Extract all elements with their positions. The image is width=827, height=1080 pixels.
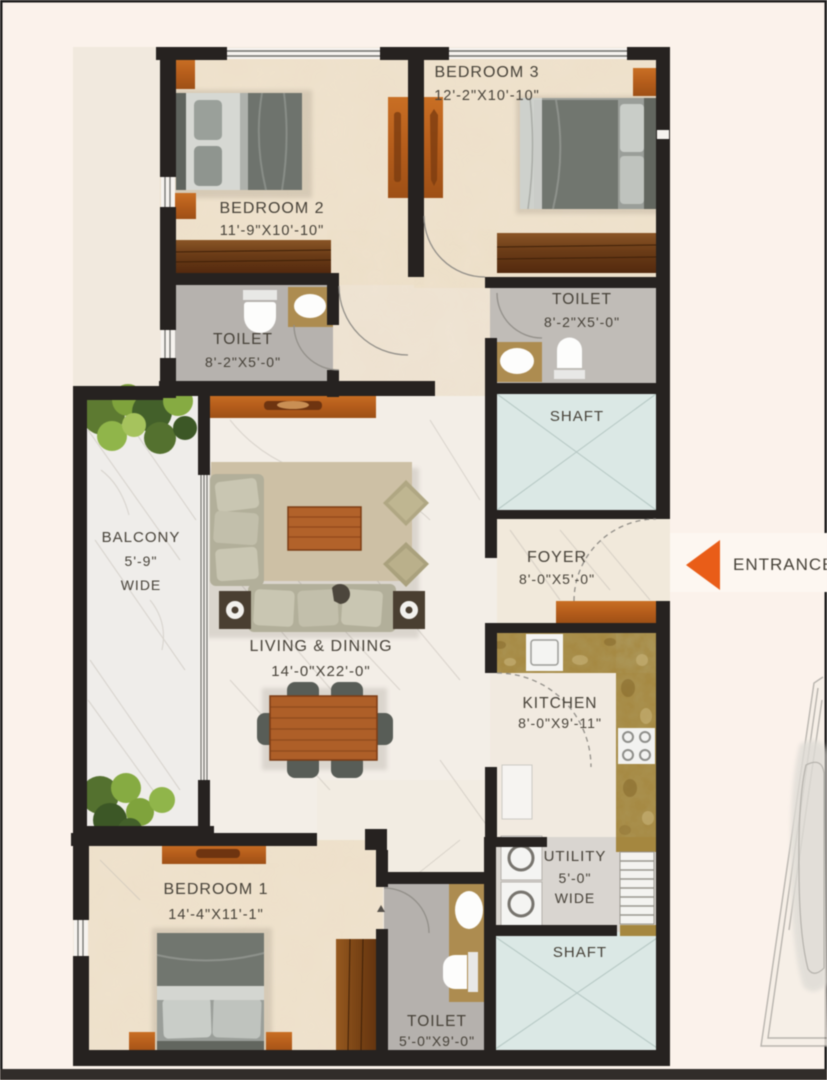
svg-text:BEDROOM 3: BEDROOM 3 xyxy=(434,64,539,81)
svg-text:LIVING & DINING: LIVING & DINING xyxy=(249,638,392,655)
svg-text:5'-9": 5'-9" xyxy=(125,553,158,569)
svg-text:FOYER: FOYER xyxy=(527,549,587,566)
svg-text:TOILET: TOILET xyxy=(552,291,612,308)
svg-text:BEDROOM 1: BEDROOM 1 xyxy=(163,881,268,898)
svg-text:BEDROOM 2: BEDROOM 2 xyxy=(219,200,324,217)
svg-text:BALCONY: BALCONY xyxy=(102,529,181,546)
svg-text:KITCHEN: KITCHEN xyxy=(522,695,597,712)
svg-text:5'-0": 5'-0" xyxy=(559,870,592,886)
svg-text:5'-0"X9'-0": 5'-0"X9'-0" xyxy=(399,1033,475,1049)
svg-text:8'-2"X5'-0": 8'-2"X5'-0" xyxy=(544,314,620,330)
svg-text:8'-2"X5'-0": 8'-2"X5'-0" xyxy=(205,354,281,370)
svg-text:TOILET: TOILET xyxy=(213,331,273,348)
svg-text:SHAFT: SHAFT xyxy=(553,944,607,961)
svg-text:WIDE: WIDE xyxy=(121,577,162,593)
svg-text:11'-9"X10'-10": 11'-9"X10'-10" xyxy=(220,223,325,239)
svg-text:WIDE: WIDE xyxy=(555,890,596,906)
svg-text:SHAFT: SHAFT xyxy=(550,408,604,425)
svg-text:8'-0"X5'-0": 8'-0"X5'-0" xyxy=(519,571,595,587)
svg-text:14'-0"X22'-0": 14'-0"X22'-0" xyxy=(271,663,370,680)
svg-text:UTILITY: UTILITY xyxy=(544,848,607,865)
svg-text:12'-2"X10'-10": 12'-2"X10'-10" xyxy=(434,88,540,104)
svg-text:ENTRANCE: ENTRANCE xyxy=(733,555,827,574)
svg-text:14'-4"X11'-1": 14'-4"X11'-1" xyxy=(168,907,263,923)
svg-text:TOILET: TOILET xyxy=(407,1013,467,1030)
svg-text:8'-0"X9'-11": 8'-0"X9'-11" xyxy=(518,715,602,731)
